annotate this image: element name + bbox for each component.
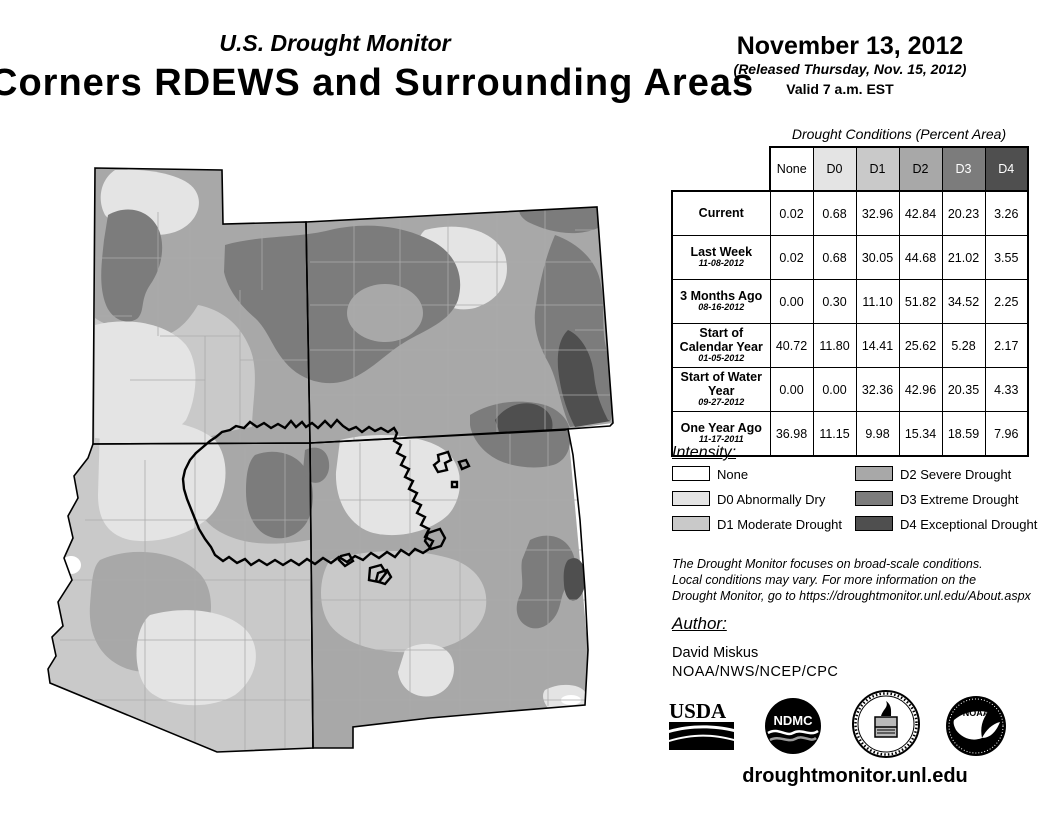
row-label: Start of Calendar Year01-05-2012 bbox=[672, 324, 770, 368]
drought-map bbox=[0, 140, 660, 816]
legend-swatch-d2 bbox=[855, 466, 893, 481]
release-date: (Released Thursday, Nov. 15, 2012) bbox=[680, 61, 1020, 77]
table-cell: 0.68 bbox=[813, 236, 856, 280]
page-title: Corners RDEWS and Surrounding Areas bbox=[0, 62, 754, 105]
table-cell: 3.26 bbox=[985, 191, 1028, 236]
table-cell: 3.55 bbox=[985, 236, 1028, 280]
table-cell: 34.52 bbox=[942, 280, 985, 324]
table-cell: 11.10 bbox=[856, 280, 899, 324]
table-cell: 40.72 bbox=[770, 324, 813, 368]
legend-label: D2 Severe Drought bbox=[900, 467, 1011, 482]
table-cell: 32.36 bbox=[856, 368, 899, 412]
intensity-heading: Intensity: bbox=[672, 444, 736, 462]
table-cell: 18.59 bbox=[942, 412, 985, 457]
legend-label: None bbox=[717, 467, 748, 482]
author-heading: Author: bbox=[672, 614, 727, 634]
col-header-d0: D0 bbox=[813, 147, 856, 191]
author-org: NOAA/NWS/NCEP/CPC bbox=[672, 664, 838, 680]
noaa-logo: NOAA bbox=[944, 694, 1008, 758]
table-cell: 0.00 bbox=[770, 368, 813, 412]
table-corner-cell bbox=[672, 147, 770, 191]
col-header-none: None bbox=[770, 147, 813, 191]
table-cell: 20.35 bbox=[942, 368, 985, 412]
col-header-d1: D1 bbox=[856, 147, 899, 191]
usda-logo-text: USDA bbox=[669, 700, 727, 723]
site-url: droughtmonitor.unl.edu bbox=[690, 765, 1020, 788]
commerce-seal-logo bbox=[851, 689, 921, 759]
table-cell: 36.98 bbox=[770, 412, 813, 457]
table-cell: 0.02 bbox=[770, 236, 813, 280]
legend-swatch-d0 bbox=[672, 491, 710, 506]
table-cell: 5.28 bbox=[942, 324, 985, 368]
legend-label: D4 Exceptional Drought bbox=[900, 517, 1037, 532]
table-row: 3 Months Ago08-16-2012 0.00 0.30 11.10 5… bbox=[672, 280, 1028, 324]
table-cell: 11.15 bbox=[813, 412, 856, 457]
table-cell: 7.96 bbox=[985, 412, 1028, 457]
table-cell: 0.30 bbox=[813, 280, 856, 324]
table-row: Start of Water Year09-27-2012 0.00 0.00 … bbox=[672, 368, 1028, 412]
table-cell: 11.80 bbox=[813, 324, 856, 368]
legend-label: D0 Abnormally Dry bbox=[717, 492, 825, 507]
row-label: 3 Months Ago08-16-2012 bbox=[672, 280, 770, 324]
drought-conditions-table: None D0 D1 D2 D3 D4 Current 0.02 0.68 32… bbox=[671, 146, 1029, 457]
legend-label: D1 Moderate Drought bbox=[717, 517, 842, 532]
usdm-program-title: U.S. Drought Monitor bbox=[150, 30, 520, 57]
author-name: David Miskus bbox=[672, 645, 758, 661]
table-cell: 2.17 bbox=[985, 324, 1028, 368]
table-caption: Drought Conditions (Percent Area) bbox=[770, 126, 1028, 142]
usda-logo: USDA bbox=[668, 700, 736, 754]
row-label: Last Week11-08-2012 bbox=[672, 236, 770, 280]
table-cell: 32.96 bbox=[856, 191, 899, 236]
legend-swatch-d3 bbox=[855, 491, 893, 506]
col-header-d4: D4 bbox=[985, 147, 1028, 191]
row-label: Current bbox=[672, 191, 770, 236]
table-cell: 15.34 bbox=[899, 412, 942, 457]
table-cell: 0.68 bbox=[813, 191, 856, 236]
valid-time: Valid 7 a.m. EST bbox=[700, 81, 980, 97]
table-cell: 20.23 bbox=[942, 191, 985, 236]
table-cell: 4.33 bbox=[985, 368, 1028, 412]
table-cell: 9.98 bbox=[856, 412, 899, 457]
map-date: November 13, 2012 bbox=[700, 32, 1000, 61]
table-row: Start of Calendar Year01-05-2012 40.72 1… bbox=[672, 324, 1028, 368]
row-label: Start of Water Year09-27-2012 bbox=[672, 368, 770, 412]
table-cell: 2.25 bbox=[985, 280, 1028, 324]
ndmc-logo: NDMC bbox=[764, 697, 822, 755]
table-cell: 51.82 bbox=[899, 280, 942, 324]
noaa-logo-text: NOAA bbox=[963, 708, 990, 718]
table-cell: 0.00 bbox=[813, 368, 856, 412]
table-cell: 42.96 bbox=[899, 368, 942, 412]
table-cell: 21.02 bbox=[942, 236, 985, 280]
table-cell: 42.84 bbox=[899, 191, 942, 236]
table-header-row: None D0 D1 D2 D3 D4 bbox=[672, 147, 1028, 191]
table-cell: 30.05 bbox=[856, 236, 899, 280]
table-row: Last Week11-08-2012 0.02 0.68 30.05 44.6… bbox=[672, 236, 1028, 280]
ndmc-logo-text: NDMC bbox=[774, 713, 814, 728]
table-cell: 44.68 bbox=[899, 236, 942, 280]
table-cell: 25.62 bbox=[899, 324, 942, 368]
col-header-d3: D3 bbox=[942, 147, 985, 191]
table-cell: 14.41 bbox=[856, 324, 899, 368]
table-row: Current 0.02 0.68 32.96 42.84 20.23 3.26 bbox=[672, 191, 1028, 236]
table-cell: 0.00 bbox=[770, 280, 813, 324]
legend-swatch-d1 bbox=[672, 516, 710, 531]
disclaimer-text: The Drought Monitor focuses on broad-sca… bbox=[672, 556, 1042, 604]
drought-shading bbox=[48, 168, 613, 752]
legend-swatch-d4 bbox=[855, 516, 893, 531]
legend-swatch-none bbox=[672, 466, 710, 481]
col-header-d2: D2 bbox=[899, 147, 942, 191]
legend-label: D3 Extreme Drought bbox=[900, 492, 1019, 507]
drought-monitor-page: U.S. Drought Monitor Corners RDEWS and S… bbox=[0, 0, 1056, 816]
table-cell: 0.02 bbox=[770, 191, 813, 236]
